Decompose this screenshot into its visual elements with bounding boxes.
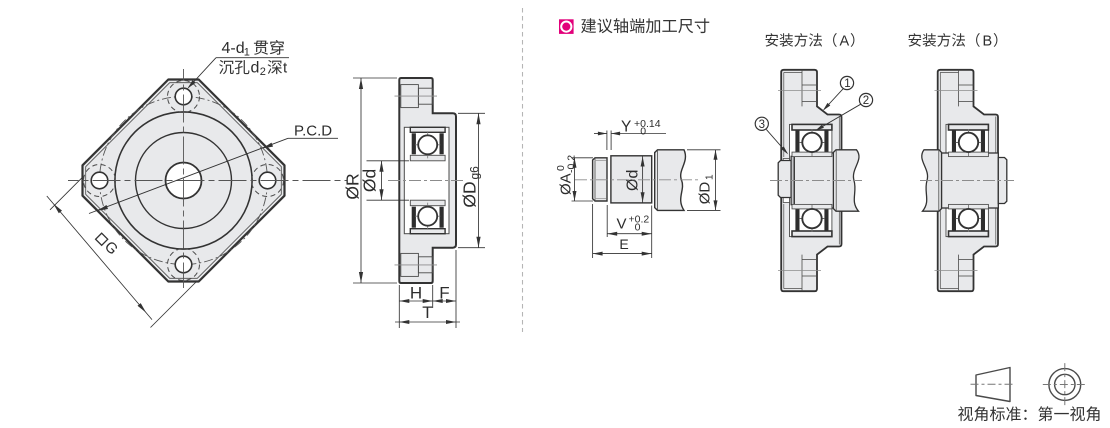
svg-text:1: 1 [244, 47, 250, 59]
svg-text:B: B [983, 33, 993, 49]
svg-text:d: d [251, 60, 260, 77]
svg-text:g6: g6 [468, 166, 482, 180]
svg-text:T: T [422, 303, 432, 322]
svg-text:A: A [840, 33, 850, 49]
svg-text:0: 0 [640, 126, 646, 138]
svg-text:Y: Y [621, 119, 631, 136]
svg-text:F: F [439, 284, 449, 303]
svg-text:-0.2: -0.2 [566, 155, 578, 173]
svg-text:2: 2 [260, 66, 266, 78]
svg-text:1: 1 [705, 174, 716, 180]
svg-text:+0.14: +0.14 [634, 118, 661, 130]
svg-text:P.C.D: P.C.D [294, 123, 332, 140]
svg-text:ØA: ØA [558, 173, 575, 195]
svg-text:V: V [617, 216, 627, 233]
svg-text:G: G [101, 238, 121, 258]
svg-text:0: 0 [635, 221, 641, 233]
svg-text:ØD: ØD [697, 182, 714, 205]
svg-text:t: t [283, 60, 288, 77]
svg-text:Ød: Ød [625, 170, 642, 191]
svg-text:2: 2 [863, 95, 869, 107]
svg-text:H: H [410, 284, 422, 303]
svg-text:ØD: ØD [460, 181, 480, 207]
svg-text:E: E [619, 236, 628, 252]
svg-text:1: 1 [844, 78, 850, 90]
svg-text:4-d: 4-d [222, 40, 245, 57]
svg-text:Ød: Ød [360, 169, 380, 192]
svg-text:3: 3 [759, 119, 765, 131]
